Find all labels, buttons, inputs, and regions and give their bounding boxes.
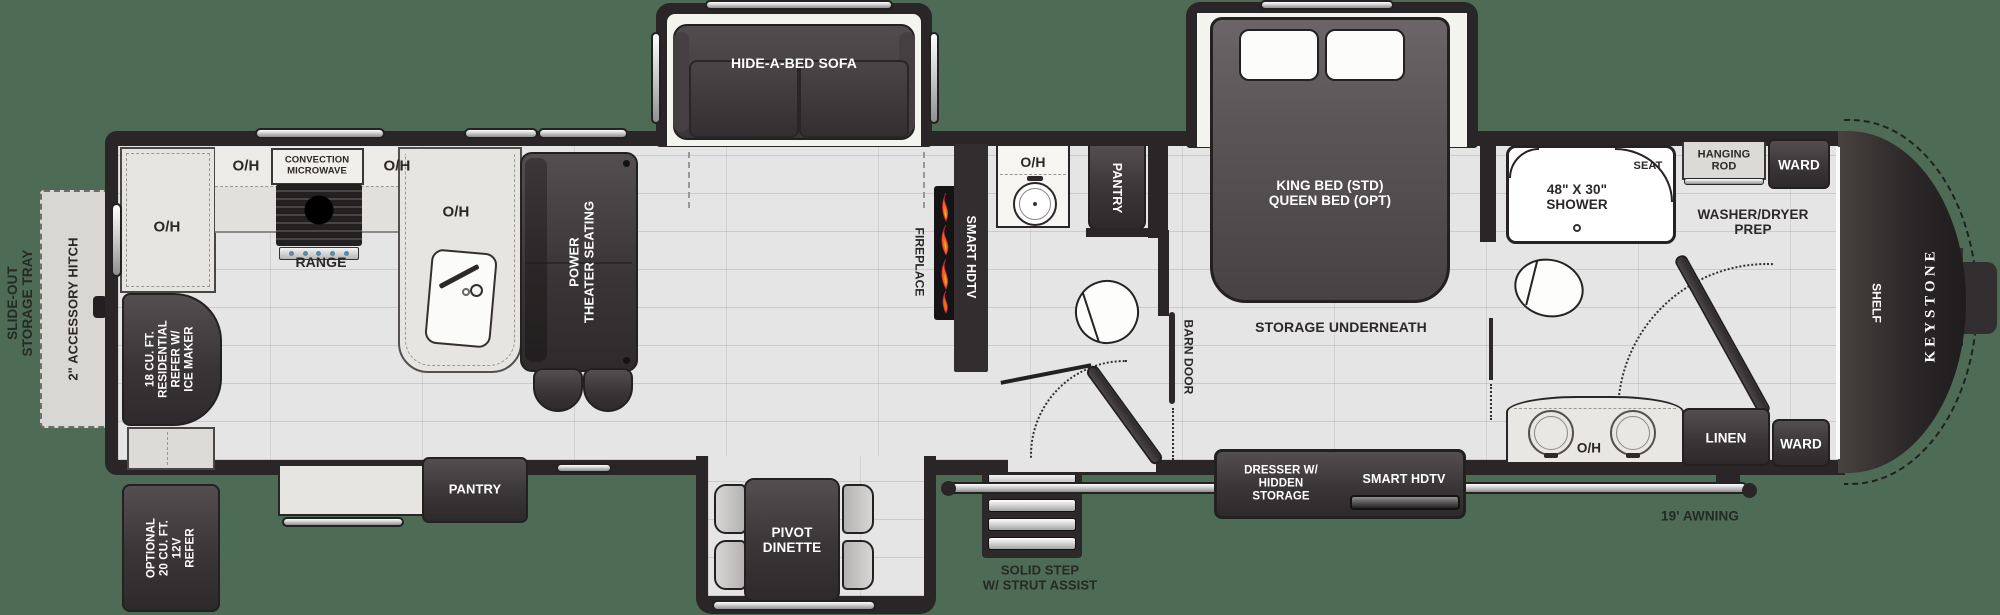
vanity-sink [1610,410,1656,456]
residential-refer-label: 18 CU. FT. RESIDENTIAL REFER W/ ICE MAKE… [144,320,196,398]
king-bed-label: KING BED (STD) QUEEN BED (OPT) [1269,178,1391,208]
barn-door-track-dotted [1172,408,1174,460]
window-bar [464,128,538,139]
window-bar-rear [111,203,122,277]
bath-bedroom-wall [1158,230,1169,316]
bottom-cabinet [278,464,424,516]
oh-left-label: O/H [233,159,260,176]
step-tread [988,537,1076,550]
shower-seat-arc [1615,148,1673,202]
hide-a-bed-sofa-label: HIDE-A-BED SOFA [731,56,857,72]
convection-microwave-label: CONVECTION MICROWAVE [285,155,349,176]
theater-bolt [623,160,630,167]
kitchen-faucet-knob [470,284,483,297]
vanity-sink-inner [1534,416,1568,450]
awning-end-cap [941,481,956,496]
vanity-sink-inner [1616,416,1650,450]
awning-label: 19' AWNING [1661,508,1739,523]
bath-pantry-label: PANTRY [1110,163,1124,214]
oh-sink-label: O/H [443,205,470,222]
window-bar [556,463,612,473]
theater-bolt [623,357,630,364]
window-bar [1260,0,1394,10]
floorplan-canvas: SLIDE-OUT STORAGE TRAY 2" ACCESSORY HITC… [0,0,2000,615]
step-tread [988,518,1076,531]
vanity-faucet [1626,453,1640,458]
hanging-rod-icon [1684,178,1764,185]
bath-faucet [1027,176,1043,181]
dresser-label: DRESSER W/ HIDDEN STORAGE [1244,465,1318,504]
sofa-armrest [673,32,689,132]
rear-storage-box [127,427,215,470]
awning-end-cap [1742,483,1757,498]
bath-wall [1148,146,1168,238]
shower-drain [1573,224,1581,232]
vanity-dash [1514,408,1676,409]
hanging-rod-label: HANGING ROD [1698,149,1751,174]
vanity-oh-label: O/H [1577,440,1601,455]
range-label: RANGE [295,255,346,271]
kitchen-sink [424,248,498,348]
hide-a-bed-sofa [673,24,915,140]
bedroom-bath-wall [1480,144,1496,242]
slide-travel-line [923,152,925,208]
washer-dryer-prep-label: WASHER/DRYER PREP [1698,207,1809,237]
slide-travel-line [688,152,690,208]
awning-bracket [1716,475,1740,483]
vanity-faucet [1544,453,1558,458]
bed-pillow [1325,29,1405,81]
front-cap-divider-line [1836,147,1840,459]
theater-seating-label: POWER THEATER SEATING [567,201,596,323]
barn-door-label: BARN DOOR [1181,320,1194,395]
oh-rear-label: O/H [154,220,181,237]
dinette-chair [714,484,746,534]
range-cooktop [276,184,362,246]
solid-step [982,466,1082,558]
king-bed [1210,17,1450,303]
bath-sink [1013,182,1057,226]
solid-step-label: SOLID STEP W/ STRUT ASSIST [983,563,1097,592]
shower-corner-arc [1509,148,1539,178]
window-bar [538,128,628,139]
pocket-door-panel [1489,318,1493,380]
slide-out-storage-tray-label: SLIDE-OUT STORAGE TRAY [5,250,35,357]
dinette-chair [714,540,746,590]
bath-sink-drain [1033,202,1037,206]
shelf-label: SHELF [1869,283,1882,323]
bedroom-tv-icon [1350,495,1460,510]
bed-pillow [1239,29,1319,81]
dinette-chair [842,484,874,534]
linen-label: LINEN [1706,430,1747,445]
pantry-bottom-label: PANTRY [449,483,502,498]
pivot-dinette-label: PIVOT DINETTE [763,525,821,555]
window-bar [282,517,404,527]
storage-divider [167,432,168,465]
window-bar [651,32,661,124]
theater-backrest [525,158,547,362]
fireplace-label: FIREPLACE [912,228,925,297]
bath-oh-dash [1000,174,1066,175]
ward-top-label: WARD [1778,157,1820,172]
dinette-chair [842,540,874,590]
window-bar [255,128,385,139]
optional-refer-label: OPTIONAL 20 CU. FT. 12V REFER [145,518,197,578]
accessory-hitch-label: 2" ACCESSORY HITCH [67,237,82,380]
vanity-sink [1528,410,1574,456]
shower-label: 48" X 30" SHOWER [1546,182,1607,212]
pocket-door-track-dotted [1490,384,1492,420]
step-tread [988,499,1076,512]
ward-bottom-label: WARD [1780,436,1822,451]
window-bar [712,600,876,611]
keystone-brand-label: KEYSTONE [1923,247,1940,362]
kitchen-sink-drain [462,288,470,296]
smart-hdtv-label: SMART HDTV [964,216,978,299]
storage-underneath-label: STORAGE UNDERNEATH [1255,320,1427,336]
range-knob [289,251,294,256]
bath-oh-label: O/H [1020,155,1045,171]
fireplace-flame-icon [937,191,955,315]
oh-right-label: O/H [384,159,411,176]
window-bar [705,0,893,10]
shower-seat-label: SEAT [1634,160,1663,172]
barn-door-panel [1169,312,1175,404]
window-bar [929,32,939,124]
bedroom-smart-hdtv-label: SMART HDTV [1363,472,1446,486]
